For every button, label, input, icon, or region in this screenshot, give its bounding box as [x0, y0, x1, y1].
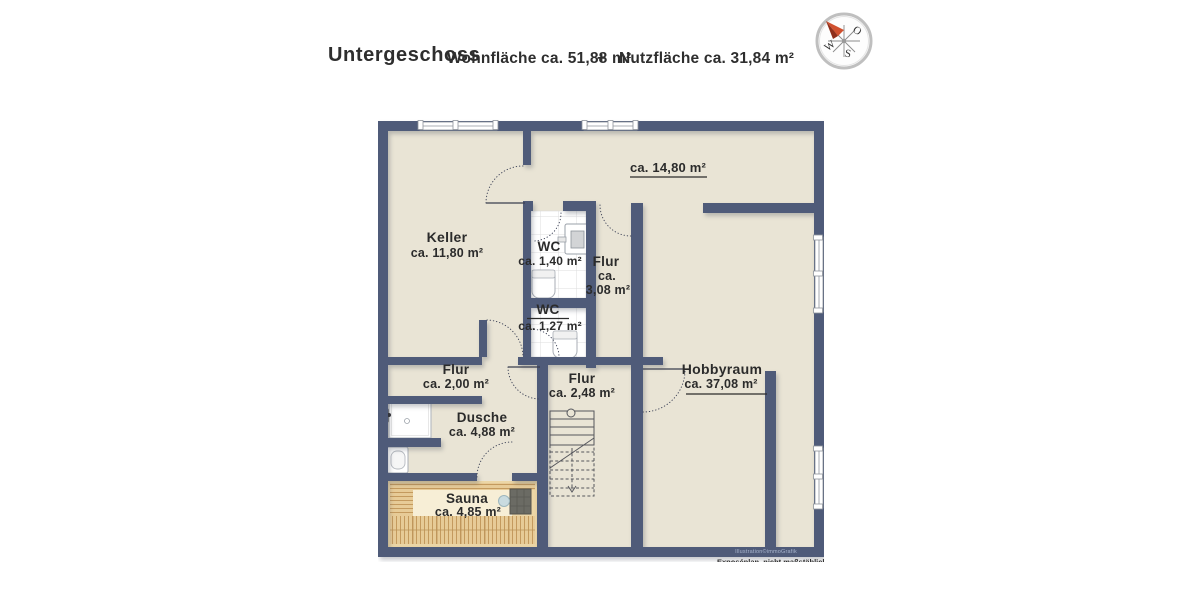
- compass-rose: O W S: [812, 11, 876, 73]
- svg-text:3,08 m²: 3,08 m²: [586, 283, 630, 297]
- svg-text:ca. 37,08 m²: ca. 37,08 m²: [684, 377, 757, 391]
- scale-disclaimer: Exposéplan, nicht maßstäblich: [717, 558, 824, 563]
- window-top-right: [582, 121, 638, 131]
- svg-text:ca. 4,85 m²: ca. 4,85 m²: [435, 505, 501, 519]
- sauna-stove-icon: [510, 489, 531, 514]
- window-top-left: [418, 121, 498, 131]
- window-right-lower: [814, 446, 824, 509]
- svg-text:Flur: Flur: [569, 371, 596, 386]
- illustration-credit: Illustration©immoGrafik: [735, 548, 797, 555]
- svg-text:Hobbyraum: Hobbyraum: [682, 361, 763, 377]
- svg-text:WC: WC: [537, 239, 560, 254]
- svg-text:ca. 11,80 m²: ca. 11,80 m²: [411, 246, 484, 260]
- svg-text:ca. 2,48 m²: ca. 2,48 m²: [549, 386, 615, 400]
- room-label-hobbyraum: Hobbyraum ca. 37,08 m²: [682, 361, 767, 394]
- svg-text:Sauna: Sauna: [446, 491, 488, 506]
- svg-text:ca.: ca.: [598, 269, 616, 283]
- svg-text:ca. 1,40 m²: ca. 1,40 m²: [518, 254, 582, 268]
- svg-text:Keller: Keller: [427, 229, 468, 245]
- svg-text:WC: WC: [536, 302, 559, 317]
- plus-sign: +: [597, 50, 606, 68]
- floorplan-page: Untergeschoss Wohnfläche ca. 51,88 m² + …: [0, 0, 1200, 600]
- window-right-upper: [814, 235, 824, 313]
- toilet-lower-icon: [553, 331, 577, 358]
- svg-text:ca. 4,88 m²: ca. 4,88 m²: [449, 425, 515, 439]
- svg-text:Dusche: Dusche: [457, 410, 508, 425]
- svg-text:ca. 14,80 m²: ca. 14,80 m²: [630, 160, 707, 175]
- svg-text:ca. 2,00 m²: ca. 2,00 m²: [423, 377, 489, 391]
- svg-text:Flur: Flur: [593, 254, 620, 269]
- svg-text:ca. 1,27 m²: ca. 1,27 m²: [518, 319, 582, 333]
- room-label-dusche: Dusche ca. 4,88 m²: [449, 410, 515, 439]
- toilet-upper-icon: [532, 270, 555, 298]
- usable-area-label: Nutzfläche ca. 31,84 m²: [619, 50, 794, 68]
- floor-plan: ca. 14,80 m² Keller ca. 11,80 m² WC ca. …: [378, 118, 824, 562]
- compass-body: O W S: [817, 14, 871, 68]
- svg-text:Flur: Flur: [443, 362, 470, 377]
- room-label-top-room: ca. 14,80 m²: [630, 160, 707, 177]
